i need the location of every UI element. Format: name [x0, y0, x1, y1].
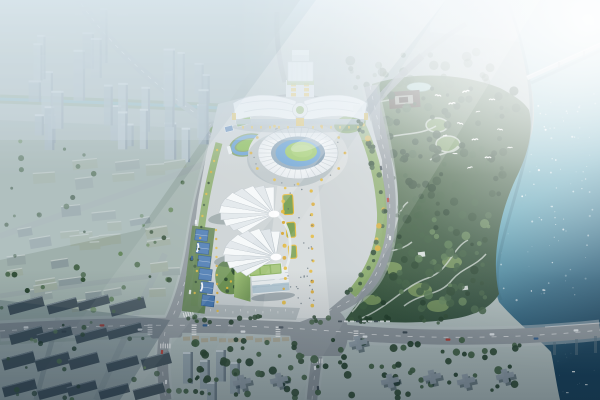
- bird: [485, 157, 491, 158]
- atmosphere: [0, 0, 600, 400]
- aerial-rendering: [0, 0, 600, 400]
- scene-canvas: [0, 0, 600, 400]
